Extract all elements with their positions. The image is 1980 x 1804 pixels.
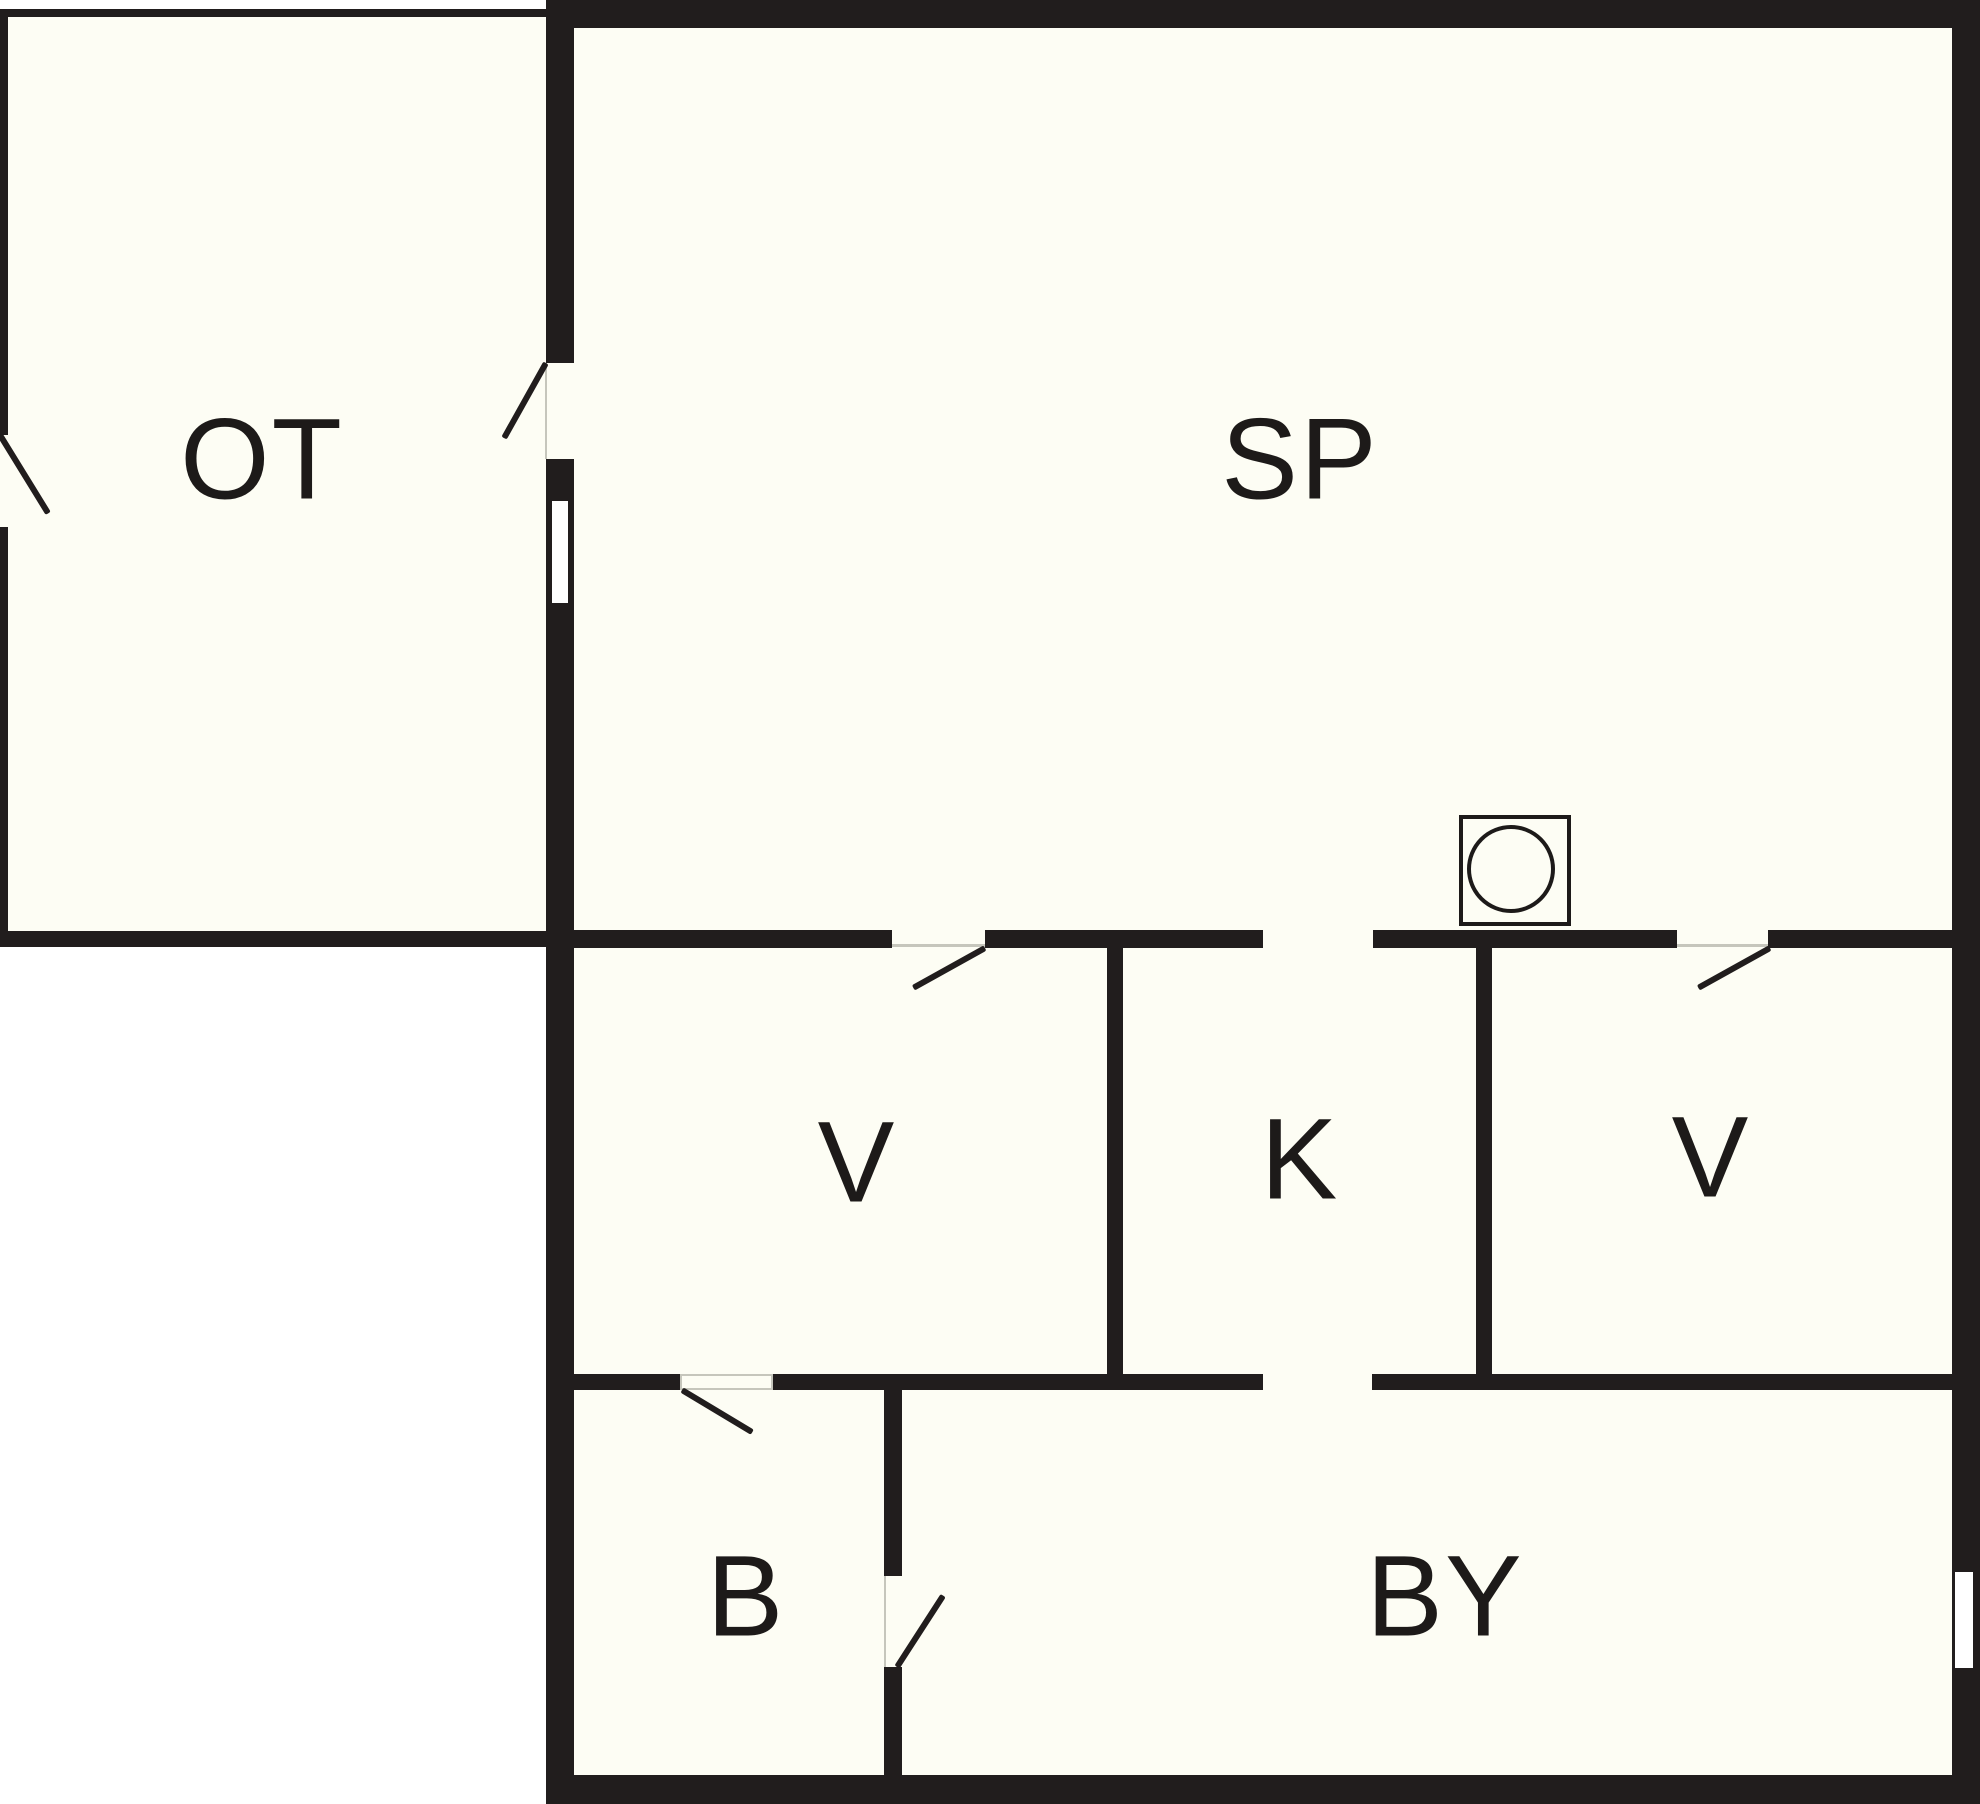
room-label-b: B: [707, 1540, 786, 1655]
sp-top-wall: [546, 0, 1980, 28]
right-outer-wall: [1952, 0, 1980, 1804]
center-vertical-wall-lower: [546, 459, 574, 1775]
room-label-v2: V: [1672, 1101, 1751, 1216]
main-block-floor: [574, 28, 1952, 1775]
floor-plan: OT SP V K V B BY: [0, 0, 1980, 1804]
k-v2-divider-wall: [1476, 948, 1492, 1374]
ot-left-wall-lower: [0, 527, 8, 947]
stove-burner-circle-icon: [1467, 825, 1555, 913]
brow-top-wall-seg3: [1372, 1374, 1952, 1390]
vrow-top-wall-seg3: [1373, 930, 1677, 948]
b-by-door-threshold: [884, 1576, 886, 1667]
v1-k-divider-wall: [1107, 948, 1123, 1374]
sp-v1-door-threshold: [892, 944, 985, 947]
ot-sp-door-threshold: [545, 363, 547, 459]
window-in-ot-sp-wall: [552, 501, 568, 603]
ot-bottom-wall: [0, 931, 546, 947]
b-by-divider-upper: [884, 1390, 902, 1576]
room-label-sp: SP: [1221, 403, 1378, 518]
room-label-k: K: [1261, 1103, 1340, 1218]
vrow-top-wall-seg2: [985, 930, 1263, 948]
room-label-v1: V: [818, 1106, 897, 1221]
stove-icon: [1459, 815, 1571, 926]
window-in-by-right-wall: [1955, 1572, 1973, 1668]
b-by-divider-lower: [884, 1667, 902, 1775]
bottom-outer-wall: [546, 1775, 1980, 1804]
ot-top-wall: [0, 9, 546, 17]
brow-top-wall-seg1: [574, 1374, 680, 1390]
room-label-ot: OT: [180, 403, 344, 518]
center-vertical-wall-upper: [546, 0, 574, 363]
sp-v2-door-threshold: [1677, 944, 1768, 947]
vrow-top-wall-seg1: [574, 930, 892, 948]
brow-top-wall-seg2: [773, 1374, 1263, 1390]
ot-sp-door-gap: [546, 363, 574, 459]
v1-b-door-slab: [680, 1374, 773, 1390]
room-label-by: BY: [1366, 1540, 1523, 1655]
ot-left-wall-upper: [0, 9, 8, 435]
vrow-top-wall-seg4: [1768, 930, 1952, 948]
